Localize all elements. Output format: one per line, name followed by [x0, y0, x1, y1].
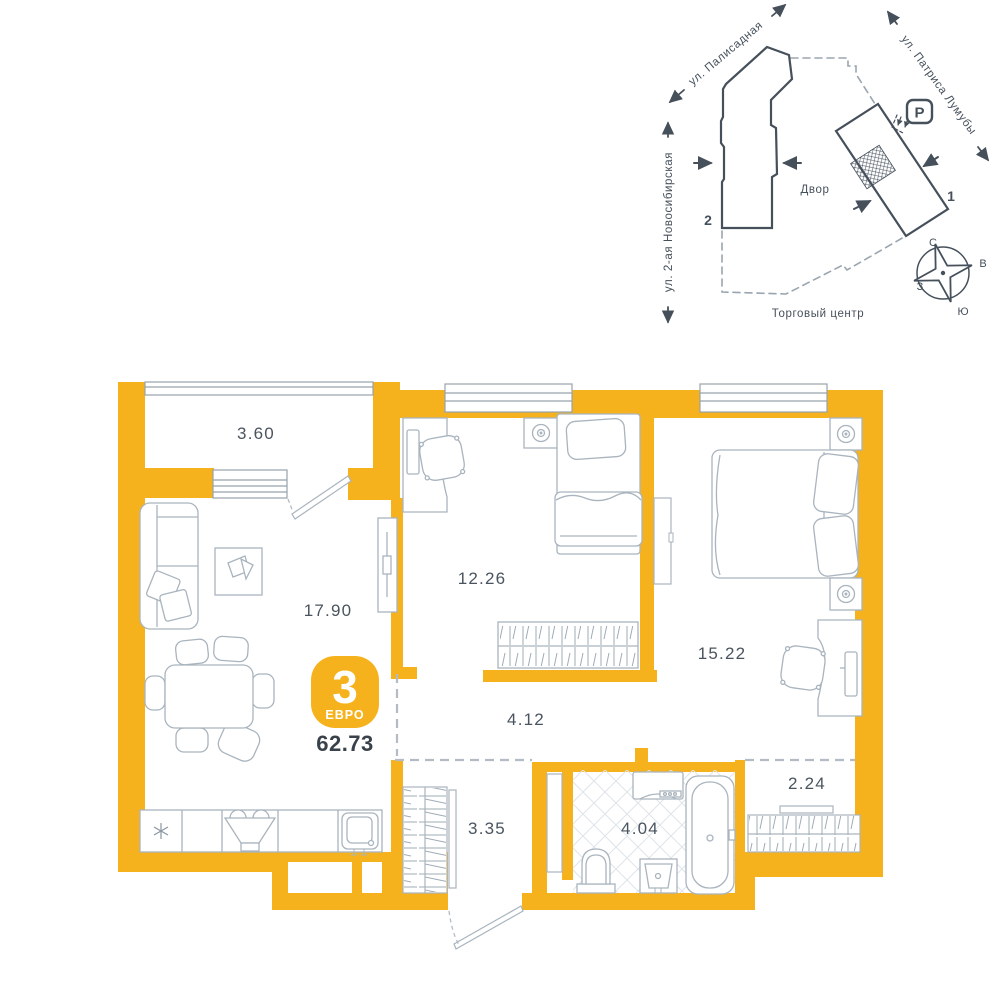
room-area-hallway: 4.12 — [507, 710, 545, 729]
compass-west: З — [917, 281, 924, 293]
bedroom-1-furniture — [403, 414, 642, 668]
street-label-novosibirskaya: ул. 2-ая Новосибирская — [663, 123, 675, 322]
wall-shaft — [288, 862, 352, 893]
apartment-plan: 3.60 17.90 12.26 15.22 4.12 3.35 4.04 2.… — [118, 382, 883, 949]
parking-entry-arrow — [898, 117, 901, 125]
building-2-outline — [721, 47, 792, 228]
side-table — [215, 548, 262, 595]
single-bed — [555, 414, 642, 554]
nightstand — [524, 418, 558, 448]
wardrobe-side-panel — [449, 790, 456, 888]
window-bedroom-2 — [700, 384, 827, 412]
dashed-separators — [395, 674, 855, 760]
site-plan: P ул. Палисадная ул. Патриса Лумубы ул. … — [663, 5, 988, 322]
parking-icon: P — [907, 100, 932, 123]
room-area-bathroom: 4.04 — [621, 819, 659, 838]
compass-icon: С В З Ю — [906, 236, 986, 318]
room-area-bedroom-2: 15.22 — [698, 644, 747, 663]
dining-table — [145, 636, 274, 765]
street-label-patrisa-lumuby: ул. Патриса Лумубы — [888, 12, 988, 160]
balcony-door-swing — [288, 499, 293, 512]
parking-letter: P — [914, 105, 924, 122]
office-chair — [779, 644, 826, 691]
room-area-bedroom-1: 12.26 — [458, 569, 507, 588]
tv-unit — [378, 518, 397, 612]
bathroom-sink — [640, 859, 677, 893]
room-area-wardrobe: 2.24 — [788, 774, 826, 793]
entry-door-swing — [449, 911, 459, 945]
wardrobe-room-furniture — [748, 806, 860, 852]
shelf — [780, 806, 833, 813]
entrance-arrow — [854, 201, 870, 209]
sofa — [140, 503, 198, 629]
window-bedroom-1 — [445, 384, 572, 412]
wardrobe-hatch — [748, 815, 860, 852]
bathtub — [686, 776, 735, 894]
site-boundary-dashed — [722, 231, 904, 294]
total-area-label: 62.73 — [316, 731, 374, 756]
compass-east: В — [979, 258, 986, 270]
wardrobe-hatch — [498, 622, 638, 668]
nightstand — [830, 578, 862, 610]
bedroom-2-furniture — [712, 418, 862, 716]
bedroom-2-door — [654, 498, 673, 584]
floor-plan-page: P ул. Палисадная ул. Патриса Лумубы ул. … — [0, 0, 1000, 1000]
site-boundary-dashed — [791, 58, 875, 104]
bathroom-door — [547, 774, 562, 872]
office-chair — [418, 434, 467, 483]
window-balcony-sill — [213, 470, 287, 498]
balcony-glazing — [145, 382, 373, 395]
building-2-number: 2 — [704, 212, 712, 228]
washing-machine — [633, 772, 683, 799]
compass-north: С — [929, 237, 937, 249]
entry-door — [454, 906, 523, 949]
entrance-arrow — [924, 157, 938, 166]
badge-layout-type: ЕВРО — [325, 708, 364, 722]
compass-south: Ю — [957, 306, 968, 318]
wall-shaft — [362, 862, 382, 893]
building-1-number: 1 — [947, 188, 955, 204]
kitchen-sink — [342, 813, 378, 855]
plan-canvas: P ул. Палисадная ул. Патриса Лумубы ул. … — [0, 0, 1000, 1000]
nightstand — [830, 418, 862, 450]
apartment-badge: 3 ЕВРО — [311, 656, 379, 728]
room-area-living: 17.90 — [304, 601, 353, 620]
room-area-entry-hall: 3.35 — [468, 819, 506, 838]
room-area-balcony: 3.60 — [237, 424, 275, 443]
badge-rooms-count: 3 — [332, 661, 358, 713]
shopping-center-label: Торговый центр — [772, 308, 865, 320]
courtyard-label: Двор — [801, 184, 830, 196]
street-name: ул. 2-ая Новосибирская — [663, 152, 675, 292]
balcony-door — [292, 476, 351, 519]
entry-wardrobe — [403, 787, 456, 893]
kitchen-counter — [140, 810, 382, 855]
parking-entry-arrow — [905, 119, 908, 127]
double-bed — [712, 450, 859, 578]
